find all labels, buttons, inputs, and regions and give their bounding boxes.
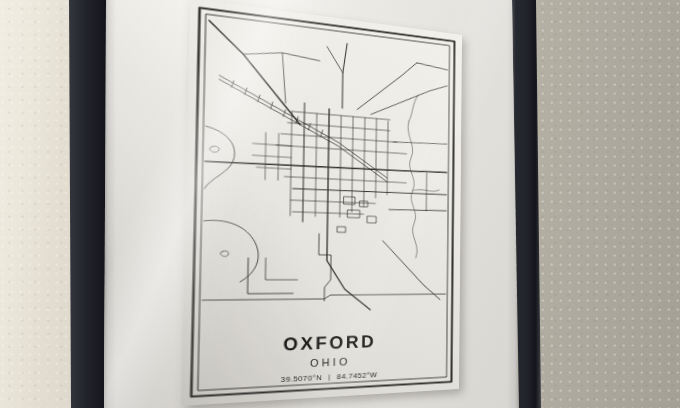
map-poster: OXFORD OHIO 39.5070°N|84.7452°W [181, 0, 462, 406]
photo-of-framed-map-poster: OXFORD OHIO 39.5070°N|84.7452°W [0, 0, 680, 408]
coordinate-separator: | [328, 373, 330, 381]
picture-frame-left-bar [66, 0, 108, 408]
map-lines [202, 20, 448, 312]
